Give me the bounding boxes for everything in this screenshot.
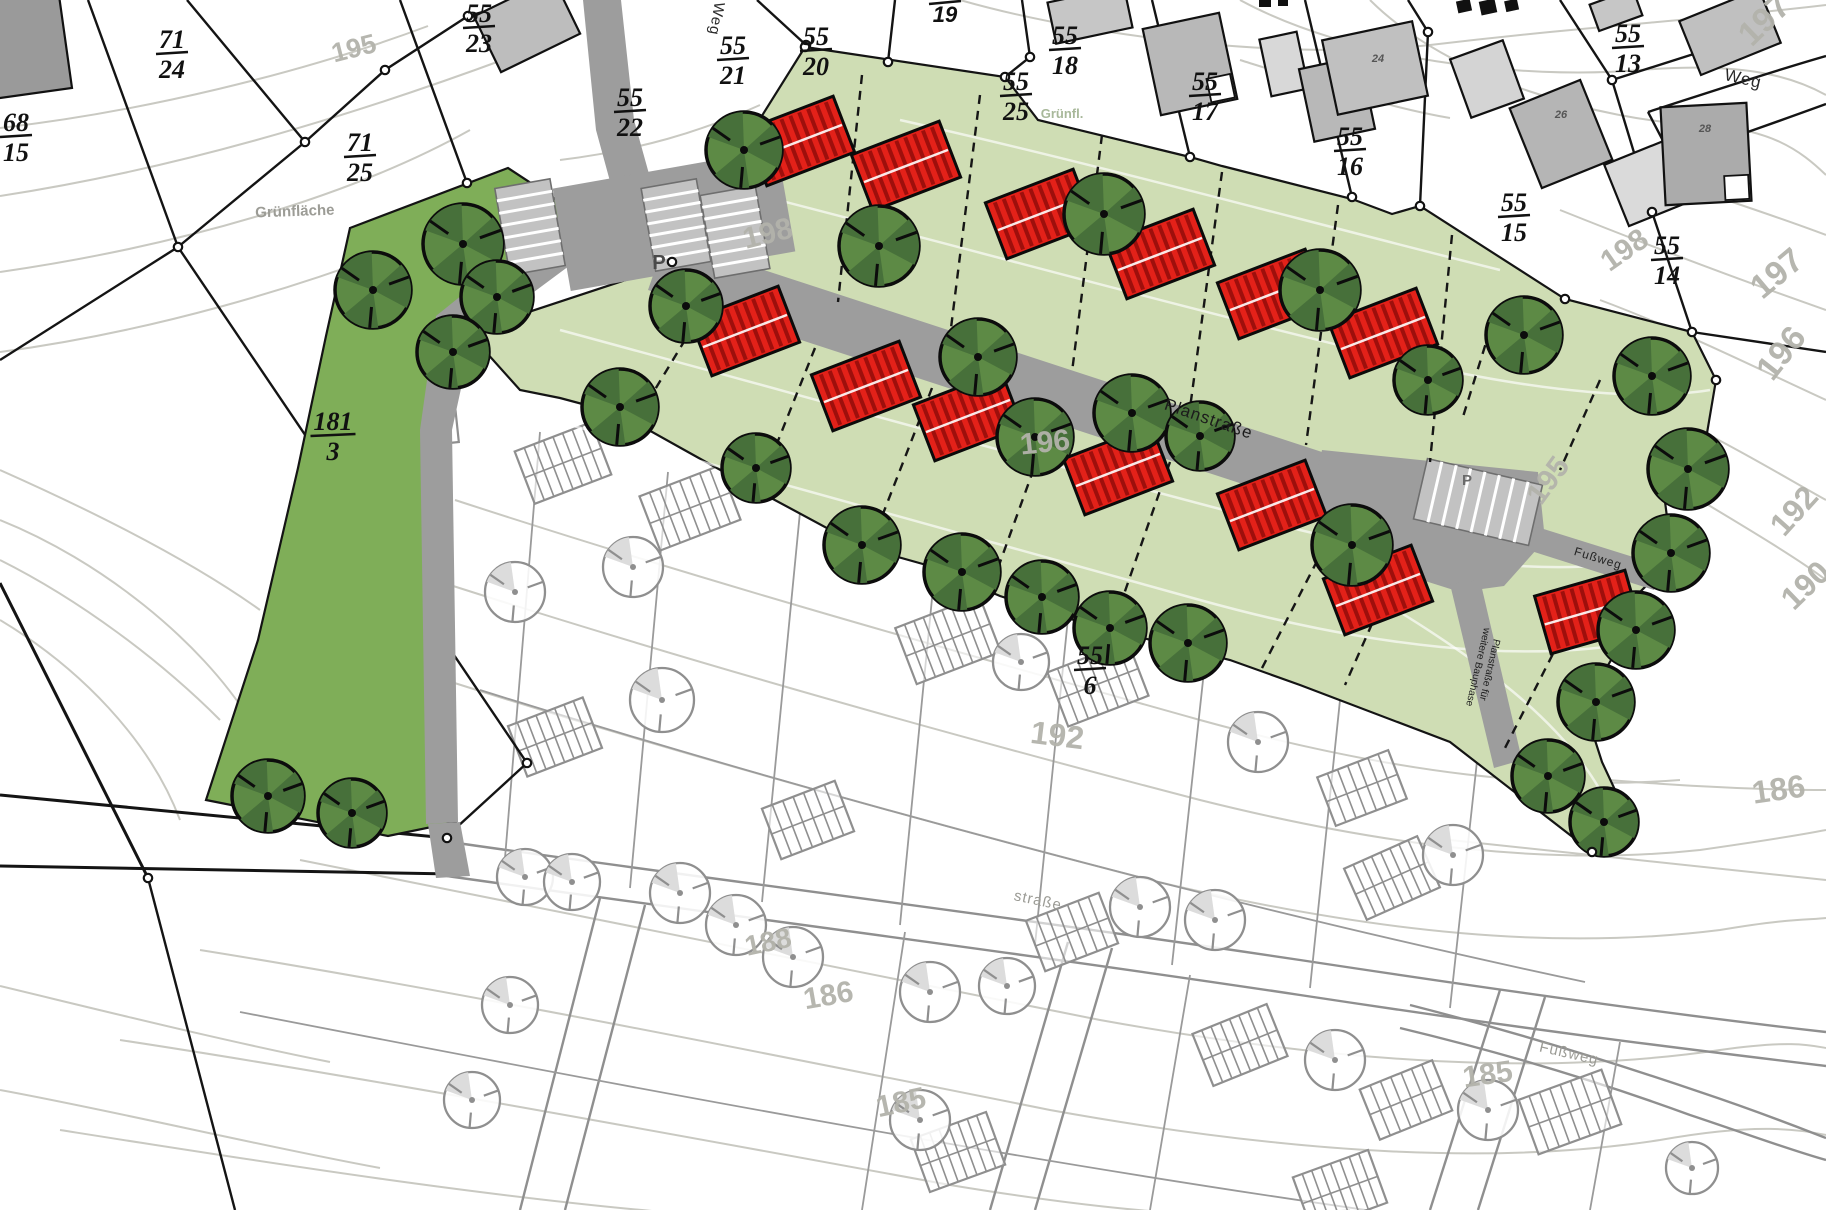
existing-tree-icon bbox=[1666, 1142, 1718, 1194]
svg-text:3: 3 bbox=[326, 437, 340, 466]
tree-icon bbox=[1512, 740, 1584, 812]
tree-icon bbox=[722, 434, 790, 502]
tree-icon bbox=[1633, 515, 1709, 591]
parcel-fraction-label: 5517 bbox=[1189, 67, 1221, 126]
tree-icon bbox=[1280, 250, 1360, 330]
svg-text:55: 55 bbox=[803, 22, 829, 51]
svg-text:55: 55 bbox=[1052, 21, 1078, 50]
existing-building bbox=[1143, 13, 1238, 115]
tree-icon bbox=[1312, 505, 1392, 585]
svg-text:15: 15 bbox=[1501, 218, 1527, 247]
parcel-number-label: 26 bbox=[1554, 109, 1568, 121]
existing-tree-icon bbox=[603, 537, 663, 597]
tree-icon bbox=[824, 507, 900, 583]
svg-text:55: 55 bbox=[1192, 67, 1218, 96]
boundary-point-marker bbox=[523, 759, 531, 767]
svg-text:22: 22 bbox=[616, 113, 643, 142]
parcel-fraction-label: 6815 bbox=[0, 108, 32, 167]
boundary-point-marker bbox=[1712, 376, 1720, 384]
existing-tree-icon bbox=[1305, 1030, 1365, 1090]
existing-tree-icon bbox=[993, 634, 1049, 690]
tree-icon bbox=[582, 369, 658, 445]
svg-text:55: 55 bbox=[1615, 19, 1641, 48]
site-plan: WegWegPlanstraßeFußwegFußwegstraßeGrünfl… bbox=[0, 0, 1826, 1210]
tree-icon bbox=[318, 779, 386, 847]
svg-text:71: 71 bbox=[347, 128, 373, 157]
area-label: Grünfläche bbox=[255, 202, 335, 222]
area-label: P bbox=[652, 252, 665, 274]
boundary-point-marker bbox=[443, 834, 451, 842]
svg-text:55: 55 bbox=[466, 0, 492, 28]
svg-text:55: 55 bbox=[1501, 188, 1527, 217]
parcel-fraction-label: 7124 bbox=[156, 25, 188, 84]
parcel-number-label: 28 bbox=[1698, 123, 1712, 135]
svg-text:55: 55 bbox=[1337, 122, 1363, 151]
boundary-point-marker bbox=[1424, 28, 1432, 36]
parcel-fraction-label: 5520 bbox=[800, 22, 832, 81]
boundary-point-marker bbox=[301, 138, 309, 146]
tree-icon bbox=[1614, 338, 1690, 414]
boundary-point-marker bbox=[884, 58, 892, 66]
tree-icon bbox=[1558, 664, 1634, 740]
svg-text:71: 71 bbox=[159, 25, 185, 54]
boundary-point-marker bbox=[1588, 848, 1596, 856]
existing-tree-icon bbox=[630, 668, 694, 732]
existing-tree-icon bbox=[1185, 890, 1245, 950]
svg-text:24: 24 bbox=[158, 55, 185, 84]
tree-icon bbox=[1064, 174, 1144, 254]
boundary-point-marker bbox=[1688, 328, 1696, 336]
existing-building bbox=[1660, 103, 1751, 205]
svg-text:13: 13 bbox=[1615, 49, 1641, 78]
tree-icon bbox=[1598, 592, 1674, 668]
tree-icon bbox=[940, 319, 1016, 395]
existing-tree-icon bbox=[444, 1072, 500, 1128]
parcel-number-label: 24 bbox=[1371, 53, 1384, 65]
svg-text:55: 55 bbox=[720, 31, 746, 60]
svg-text:55: 55 bbox=[1003, 67, 1029, 96]
tree-icon bbox=[1094, 375, 1170, 451]
tree-icon bbox=[839, 206, 919, 286]
area-label: Grünfl. bbox=[1041, 106, 1084, 121]
svg-text:23: 23 bbox=[465, 29, 492, 58]
boundary-point-marker bbox=[381, 66, 389, 74]
svg-text:16: 16 bbox=[1337, 152, 1363, 181]
svg-text:14: 14 bbox=[1654, 261, 1680, 290]
contour-elevation-label: 192 bbox=[1029, 714, 1086, 756]
existing-tree-icon bbox=[979, 958, 1035, 1014]
area-label: P bbox=[1462, 472, 1472, 489]
site-plan-map: WegWegPlanstraßeFußwegFußwegstraßeGrünfl… bbox=[0, 0, 1826, 1210]
svg-text:18: 18 bbox=[1052, 51, 1078, 80]
existing-building bbox=[0, 0, 72, 101]
svg-text:15: 15 bbox=[3, 138, 29, 167]
tree-icon bbox=[1648, 429, 1728, 509]
parcel-fraction-label: 5521 bbox=[717, 31, 749, 90]
contour-elevation-label: 186 bbox=[1750, 768, 1808, 811]
existing-tree-icon bbox=[482, 977, 538, 1033]
parcel-fraction-label: 5525 bbox=[1000, 67, 1032, 126]
svg-text:68: 68 bbox=[3, 108, 29, 137]
existing-tree-icon bbox=[900, 962, 960, 1022]
existing-tree-icon bbox=[650, 863, 710, 923]
tree-icon bbox=[1486, 297, 1562, 373]
tree-icon bbox=[335, 252, 411, 328]
existing-tree-icon bbox=[1423, 825, 1483, 885]
svg-text:20: 20 bbox=[802, 52, 829, 81]
tree-icon bbox=[1394, 346, 1462, 414]
tree-icon bbox=[706, 112, 782, 188]
boundary-point-marker bbox=[144, 874, 152, 882]
boundary-point-marker bbox=[1026, 53, 1034, 61]
existing-tree-icon bbox=[544, 854, 600, 910]
boundary-point-marker bbox=[1561, 295, 1569, 303]
svg-text:55: 55 bbox=[617, 83, 643, 112]
parcel-fraction-label: 5515 bbox=[1498, 188, 1530, 247]
boundary-point-marker bbox=[463, 179, 471, 187]
boundary-point-marker bbox=[1416, 202, 1424, 210]
existing-tree-icon bbox=[1228, 712, 1288, 772]
svg-text:55: 55 bbox=[1077, 641, 1103, 670]
parcel-fraction-label: 5523 bbox=[463, 0, 495, 58]
svg-text:17: 17 bbox=[1192, 97, 1219, 126]
parcel-fraction-label: 5518 bbox=[1049, 21, 1081, 80]
parcel-fraction-label: 5516 bbox=[1334, 122, 1366, 181]
svg-text:181: 181 bbox=[314, 407, 353, 436]
boundary-point-marker bbox=[1186, 153, 1194, 161]
svg-text:25: 25 bbox=[346, 158, 373, 187]
boundary-point-marker bbox=[1648, 208, 1656, 216]
parcel-fraction-label: 5514 bbox=[1651, 231, 1683, 290]
contour-elevation-label: 185 bbox=[1461, 1055, 1515, 1095]
boundary-point-marker bbox=[174, 243, 182, 251]
parcel-fraction-label: 7125 bbox=[344, 128, 376, 187]
contour-elevation-label: 196 bbox=[1018, 424, 1071, 462]
parcel-fraction-label: 5522 bbox=[614, 83, 646, 142]
parcel-number-label: 19 bbox=[933, 2, 958, 27]
tree-icon bbox=[417, 316, 489, 388]
svg-text:25: 25 bbox=[1002, 97, 1029, 126]
existing-tree-icon bbox=[485, 562, 545, 622]
tree-icon bbox=[1150, 605, 1226, 681]
tree-icon bbox=[232, 760, 304, 832]
parcel-fraction-label: 5513 bbox=[1612, 19, 1644, 78]
existing-tree-icon bbox=[1110, 877, 1170, 937]
svg-text:55: 55 bbox=[1654, 231, 1680, 260]
svg-text:21: 21 bbox=[719, 61, 746, 90]
boundary-point-marker bbox=[1348, 193, 1356, 201]
boundary-point-marker bbox=[668, 258, 676, 266]
svg-text:6: 6 bbox=[1084, 671, 1097, 700]
tree-icon bbox=[650, 270, 722, 342]
tree-icon bbox=[1570, 788, 1638, 856]
tree-icon bbox=[924, 534, 1000, 610]
tree-icon bbox=[1006, 561, 1078, 633]
